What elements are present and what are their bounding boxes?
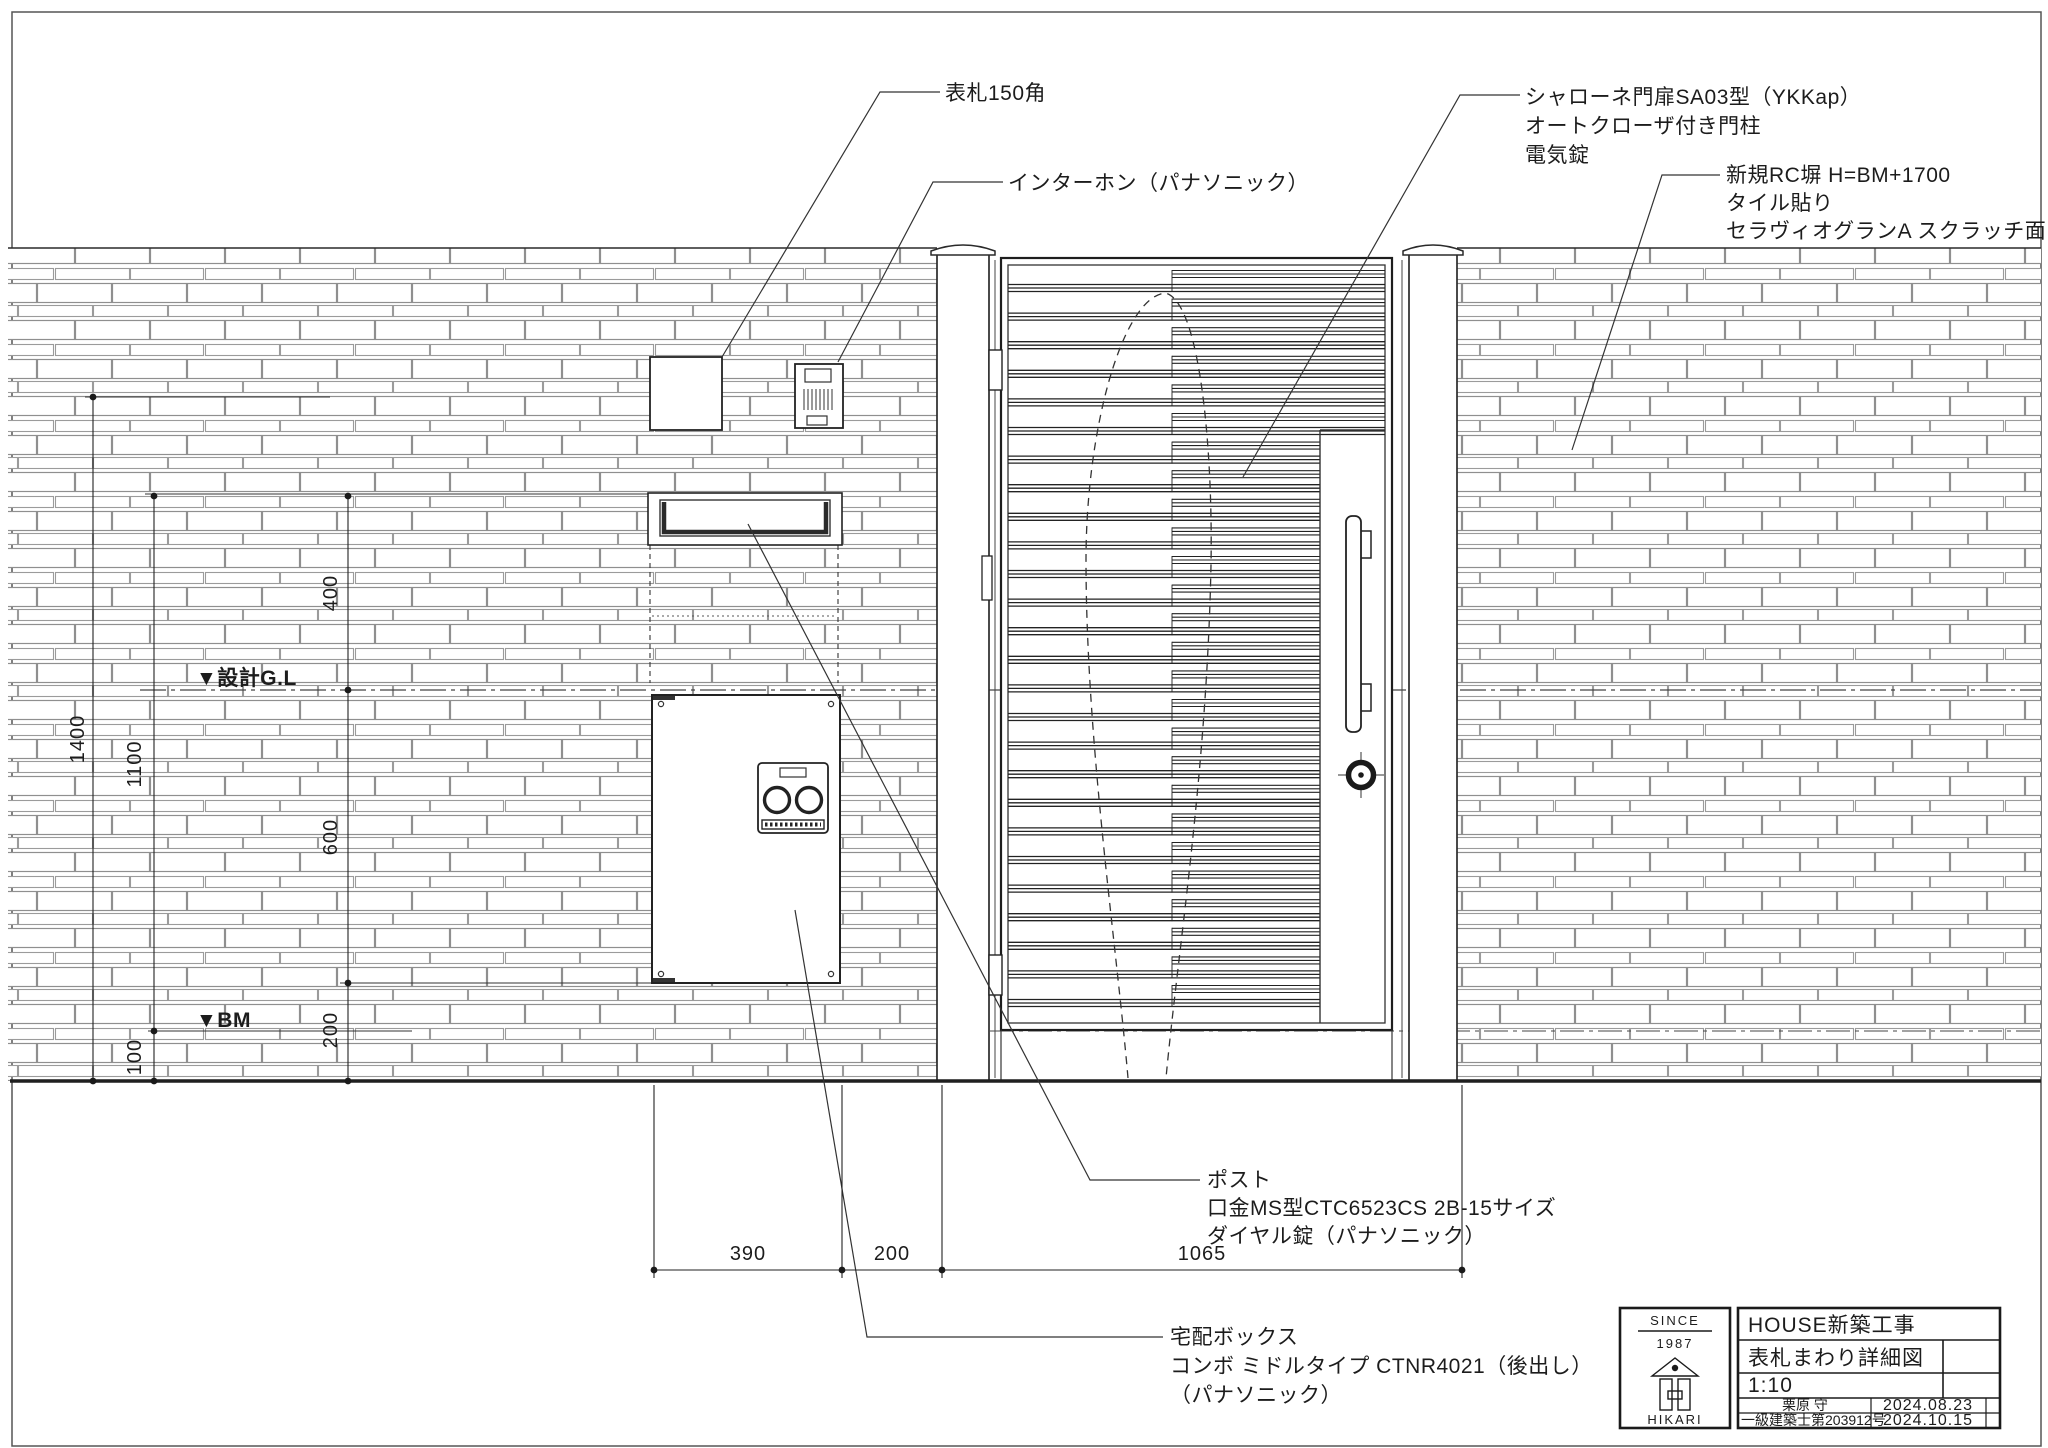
- bm-label: ▼BM: [196, 1009, 251, 1032]
- callout-post-1: ポスト: [1207, 1169, 1272, 1192]
- callout-wall-1: 新規RC塀 H=BM+1700: [1726, 164, 1951, 187]
- gate-door: [982, 258, 1392, 1081]
- callout-nameplate: 表札150角: [945, 82, 1046, 105]
- sheet-title: 表札まわり詳細図: [1748, 1347, 1924, 1370]
- dim-100: 100: [124, 1039, 146, 1075]
- dim-200h: 200: [874, 1243, 910, 1265]
- callout-delivery-2: コンボ ミドルタイプ CTNR4021（後出し）: [1170, 1355, 1593, 1378]
- logo-since: SINCE: [1650, 1313, 1700, 1328]
- gate-pillar-left: [931, 245, 995, 1081]
- callout-post-2: 口金MS型CTC6523CS 2B-15サイズ: [1207, 1197, 1556, 1220]
- project-title: HOUSE新築工事: [1748, 1314, 1916, 1337]
- callout-wall-3: セラヴィオグランA スクラッチ面（LIXIL）: [1726, 220, 2048, 243]
- title-block: SINCE 1987 HIKARI HOUSE新築工事 表札まわり詳細図 1:1…: [1620, 1308, 2000, 1429]
- architect-name: 栗原 守: [1782, 1397, 1828, 1413]
- callout-delivery-1: 宅配ボックス: [1170, 1326, 1298, 1349]
- callout-wall-2: タイル貼り: [1726, 192, 1834, 215]
- pillar-cap-left: [931, 245, 995, 255]
- drawing-canvas: 表札150角 インターホン（パナソニック） シャローネ門扉SA03型（YKKap…: [0, 0, 2048, 1448]
- dim-600: 600: [320, 819, 342, 855]
- architect-license: 一級建築士第203912号: [1741, 1412, 1886, 1428]
- callout-delivery-3: （パナソニック）: [1170, 1384, 1342, 1407]
- dim-400: 400: [320, 575, 342, 611]
- intercom: [795, 364, 843, 428]
- callout-gate-3: 電気錠: [1525, 144, 1590, 167]
- gate-pillar-right: [1403, 245, 1463, 1081]
- callout-post-3: ダイヤル錠（パナソニック）: [1207, 1225, 1486, 1248]
- dim-200v: 200: [320, 1012, 342, 1048]
- drawing-sheet: 表札150角 インターホン（パナソニック） シャローネ門扉SA03型（YKKap…: [0, 0, 2048, 1448]
- callout-gate-1: シャローネ門扉SA03型（YKKap）: [1525, 86, 1861, 109]
- brick-wall-right: [1457, 248, 2041, 1081]
- delivery-box: [652, 695, 840, 983]
- dim-1400: 1400: [67, 715, 89, 764]
- mail-slot: [648, 493, 842, 545]
- logo-company: HIKARI: [1647, 1412, 1702, 1427]
- callout-intercom: インターホン（パナソニック）: [1008, 172, 1309, 195]
- dim-1100: 1100: [124, 740, 146, 787]
- closer-block: [982, 556, 992, 600]
- dim-390: 390: [730, 1243, 766, 1265]
- callout-gate-2: オートクローザ付き門柱: [1525, 115, 1761, 138]
- dim-1065: 1065: [1178, 1243, 1227, 1265]
- nameplate: [650, 357, 722, 430]
- dim-lines-bottom: [654, 1085, 1462, 1278]
- date-revised: 2024.10.15: [1883, 1412, 1973, 1429]
- logo-year: 1987: [1657, 1336, 1694, 1351]
- drawing-scale: 1:10: [1748, 1374, 1793, 1397]
- gl-label: ▼設計G.L: [196, 666, 297, 690]
- pillar-cap-right: [1403, 245, 1463, 255]
- delivery-box-panel: [758, 763, 828, 833]
- hinge-top: [989, 350, 1002, 390]
